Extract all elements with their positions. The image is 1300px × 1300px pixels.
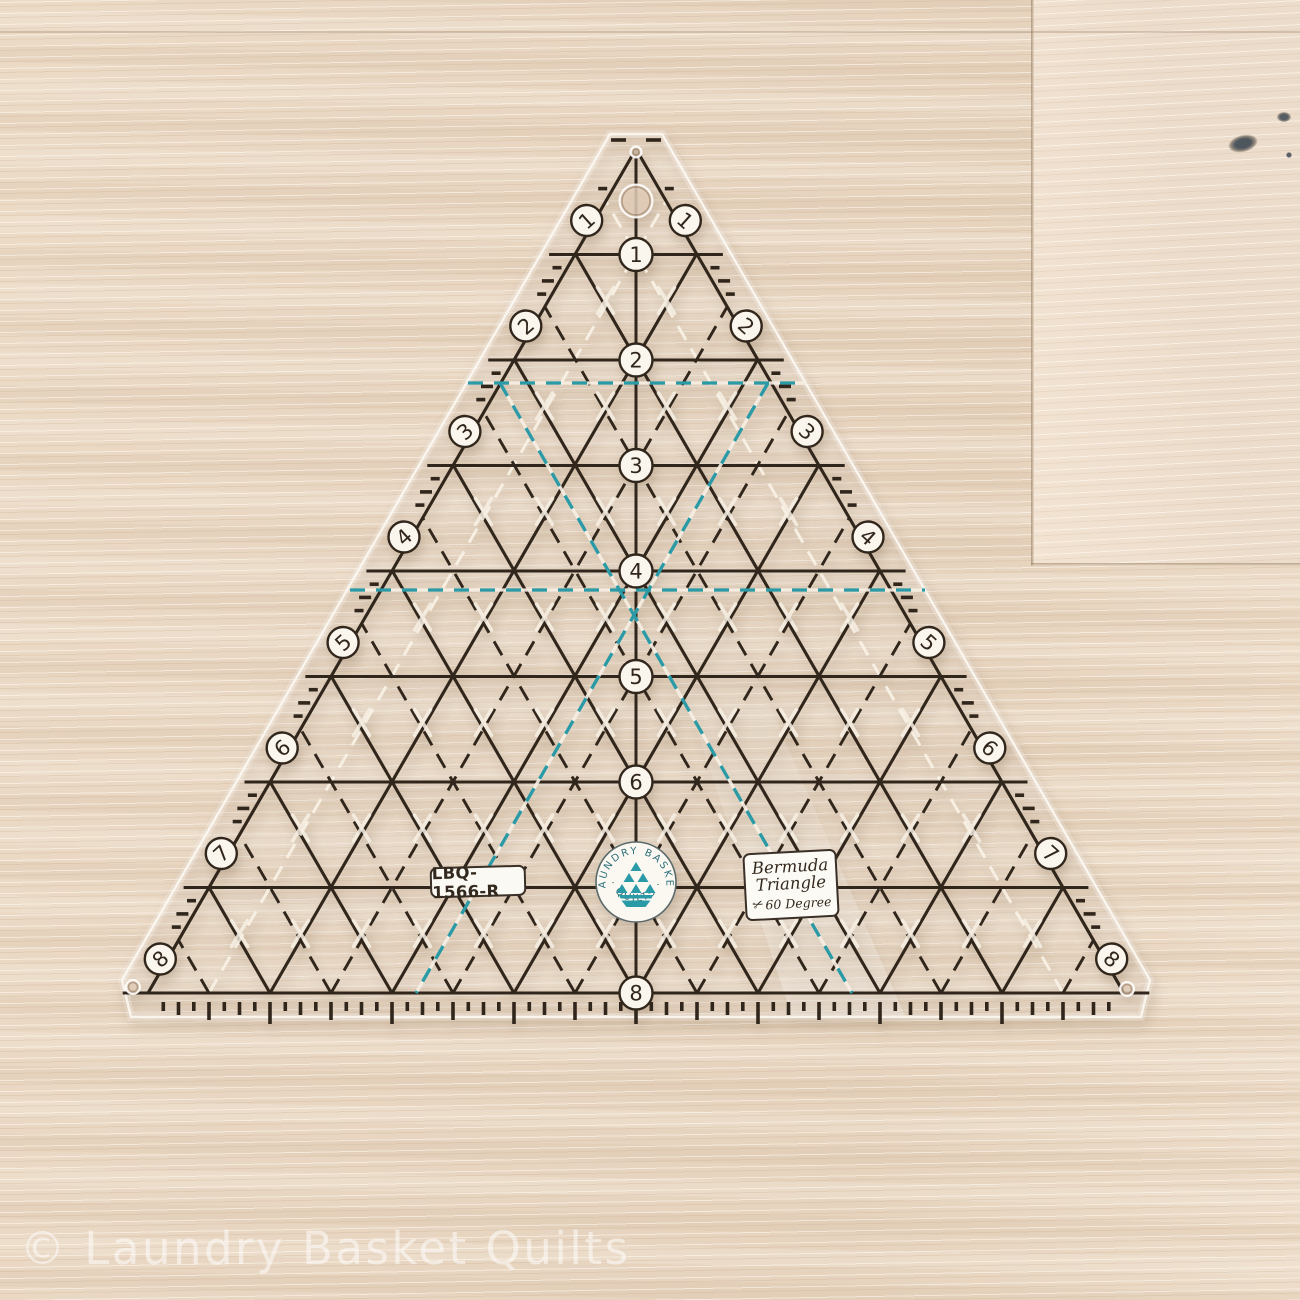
number-circle: 8: [620, 977, 653, 1010]
svg-text:2: 2: [629, 349, 642, 373]
triangle-ruler: 12345678123456781234568 · LAUNDRY BASKET…: [0, 0, 1300, 1300]
svg-text:1: 1: [629, 243, 642, 267]
scissors-icon: ✂: [750, 896, 766, 914]
brand-logo: · LAUNDRY BASKET · · QUILTS ·: [596, 842, 676, 922]
svg-text:6: 6: [629, 771, 642, 795]
number-circle: 5: [620, 660, 653, 693]
number-circle: 2: [620, 344, 653, 377]
product-photo: 12345678123456781234568 · LAUNDRY BASKET…: [0, 0, 1300, 1300]
number-circle: 1: [620, 238, 653, 271]
svg-text:8: 8: [629, 982, 642, 1006]
svg-text:3: 3: [629, 454, 642, 478]
sku-label: LBQ-1566-R: [430, 865, 527, 899]
product-name-line2: Triangle: [755, 874, 826, 894]
product-name-label: Bermuda Triangle ✂60 Degree: [742, 849, 839, 922]
number-circle: 3: [620, 449, 653, 482]
product-degree-line: ✂60 Degree: [752, 894, 832, 913]
watermark: © Laundry Basket Quilts: [20, 1222, 631, 1275]
degree-text: 60 Degree: [765, 894, 832, 912]
svg-text:5: 5: [629, 665, 642, 689]
number-circle: 4: [620, 555, 653, 588]
svg-text:4: 4: [629, 560, 642, 584]
number-circle: 6: [620, 766, 653, 799]
sku-text: LBQ-1566-R: [432, 861, 525, 901]
